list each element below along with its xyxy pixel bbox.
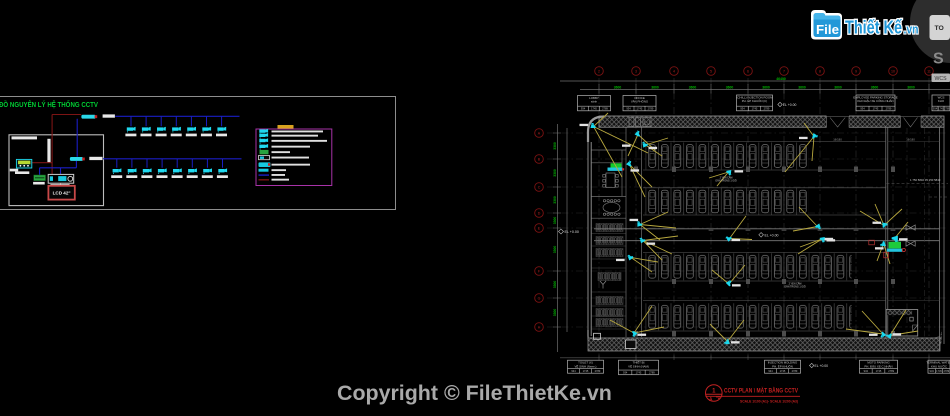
svg-text:3600: 3600 (871, 85, 879, 89)
svg-text:46400: 46400 (776, 77, 786, 81)
svg-text:2789: 2789 (888, 369, 894, 373)
svg-text:3600: 3600 (798, 85, 806, 89)
svg-text:4: 4 (673, 69, 675, 73)
svg-text:VĂN PHÒNG: VĂN PHÒNG (631, 99, 649, 104)
svg-text:.vn: .vn (904, 23, 919, 37)
svg-text:9: 9 (855, 69, 857, 73)
svg-text:SCALE 1/100 (A1)- SCALE 1/200: SCALE 1/100 (A1)- SCALE 1/200 (A3) (740, 400, 799, 404)
svg-text:S: S (933, 51, 944, 68)
svg-text:1745: 1745 (583, 369, 589, 373)
svg-text:LCD 42": LCD 42" (53, 191, 71, 196)
svg-text:PH. ÉP KHUÔN (C): PH. ÉP KHUÔN (C) (742, 98, 768, 103)
svg-text:WCS: WCS (935, 76, 948, 82)
svg-text:G: G (538, 296, 541, 300)
svg-text:934: 934 (768, 369, 773, 373)
svg-text:934: 934 (571, 369, 576, 373)
svg-text:D: D (538, 211, 541, 215)
svg-text:CCTV PLAN \ MẶT BẰNG CCTV: CCTV PLAN \ MẶT BẰNG CCTV (724, 387, 798, 395)
svg-text:2789: 2789 (595, 369, 601, 373)
svg-text:934: 934 (626, 107, 631, 111)
svg-text:1: 1 (712, 388, 716, 394)
svg-text:GẮN TRONG 1 GÓI: GẮN TRONG 1 GÓI (715, 179, 737, 182)
svg-text:2789: 2789 (944, 107, 950, 111)
svg-text:EL +0.00: EL +0.00 (765, 233, 779, 237)
svg-text:3600: 3600 (907, 85, 915, 89)
svg-text:VỆ SINH (Neee;): VỆ SINH (Neee;) (574, 363, 596, 368)
svg-text:1745: 1745 (780, 369, 786, 373)
svg-text:1745: 1745 (637, 107, 643, 111)
svg-text:1 750 5840 05 150 5840: 1 750 5840 05 150 5840 (910, 178, 941, 182)
svg-text:PH. ĐẬU XE C.NHÂN: PH. ĐẬU XE C.NHÂN (864, 364, 892, 368)
svg-text:2789: 2789 (648, 107, 654, 111)
svg-text:EL +0.00: EL +0.00 (783, 103, 797, 107)
svg-text:E: E (538, 226, 541, 230)
svg-text:File: File (816, 22, 839, 37)
svg-text:Copyright © FileThietKe.vn: Copyright © FileThietKe.vn (337, 381, 612, 405)
svg-text:2789: 2789 (792, 369, 798, 373)
svg-text:1745: 1745 (876, 369, 882, 373)
svg-text:2789: 2789 (764, 107, 770, 111)
svg-text:2789: 2789 (649, 371, 655, 375)
svg-text:1745: 1745 (591, 107, 597, 111)
svg-text:8: 8 (819, 69, 821, 73)
svg-text:TO: TO (935, 25, 944, 32)
svg-text:PH. ÉP KHUÔN: PH. ÉP KHUÔN (772, 363, 793, 368)
svg-text:3300: 3300 (553, 309, 557, 317)
svg-text:3600: 3600 (726, 85, 734, 89)
svg-text:1745: 1745 (936, 369, 942, 373)
svg-text:5: 5 (710, 69, 712, 73)
svg-text:Thiết Kế: Thiết Kế (845, 18, 903, 38)
svg-text:3300: 3300 (553, 246, 557, 254)
svg-text:3600: 3600 (762, 85, 770, 89)
svg-text:934: 934 (860, 107, 865, 111)
svg-text:3300: 3300 (553, 196, 557, 204)
svg-text:H: H (538, 325, 541, 329)
svg-text:7: 7 (783, 69, 785, 73)
svg-text:934: 934 (581, 107, 586, 111)
svg-text:sảnh: sảnh (591, 100, 598, 104)
svg-text:16/180: 16/180 (906, 138, 915, 142)
svg-text:KHO ĐẬU XE CÔNG NHÂN: KHO ĐẬU XE CÔNG NHÂN (857, 98, 893, 103)
svg-text:VỆ SINH (NAM): VỆ SINH (NAM) (628, 363, 649, 368)
svg-text:KHU NƯỚC: KHU NƯỚC (931, 363, 947, 368)
svg-text:6: 6 (747, 69, 749, 73)
svg-text:934: 934 (864, 369, 869, 373)
svg-text:F: F (538, 269, 541, 273)
svg-text:10: 10 (891, 69, 895, 73)
svg-text:A: A (709, 397, 713, 403)
svg-text:1745: 1745 (636, 371, 642, 375)
svg-text:B: B (538, 157, 541, 161)
svg-text:1745: 1745 (873, 107, 879, 111)
svg-text:2789: 2789 (943, 369, 949, 373)
svg-text:C: C (538, 185, 541, 189)
svg-text:2789: 2789 (886, 107, 892, 111)
svg-text:3300: 3300 (553, 142, 557, 150)
svg-text:934: 934 (623, 371, 628, 375)
svg-text:2789: 2789 (602, 107, 608, 111)
svg-text:3600: 3600 (614, 85, 622, 89)
svg-text:1745: 1745 (752, 107, 758, 111)
svg-text:3300: 3300 (553, 281, 557, 289)
svg-text:16/180: 16/180 (833, 138, 842, 142)
svg-text:2: 2 (598, 69, 600, 73)
svg-text:SƠ ĐỒ NGUYÊN LÝ HỆ THỐNG CCTV: SƠ ĐỒ NGUYÊN LÝ HỆ THỐNG CCTV (0, 99, 98, 109)
svg-text:3600: 3600 (689, 85, 697, 89)
svg-text:934: 934 (930, 369, 935, 373)
svg-text:3300: 3300 (553, 217, 557, 225)
svg-text:3: 3 (635, 69, 637, 73)
svg-text:EL +0.00: EL +0.00 (815, 364, 829, 368)
svg-text:3300: 3300 (553, 169, 557, 177)
svg-text:934: 934 (740, 107, 745, 111)
svg-text:934: 934 (933, 107, 938, 111)
svg-text:3600: 3600 (651, 85, 659, 89)
svg-text:KHO: KHO (938, 99, 945, 103)
svg-text:11: 11 (927, 69, 931, 73)
svg-text:EL +0.00: EL +0.00 (565, 230, 579, 234)
svg-text:3600: 3600 (834, 85, 842, 89)
svg-text:GẮN TRONG 1 GÓI: GẮN TRONG 1 GÓI (784, 285, 806, 288)
svg-text:A: A (538, 131, 541, 135)
